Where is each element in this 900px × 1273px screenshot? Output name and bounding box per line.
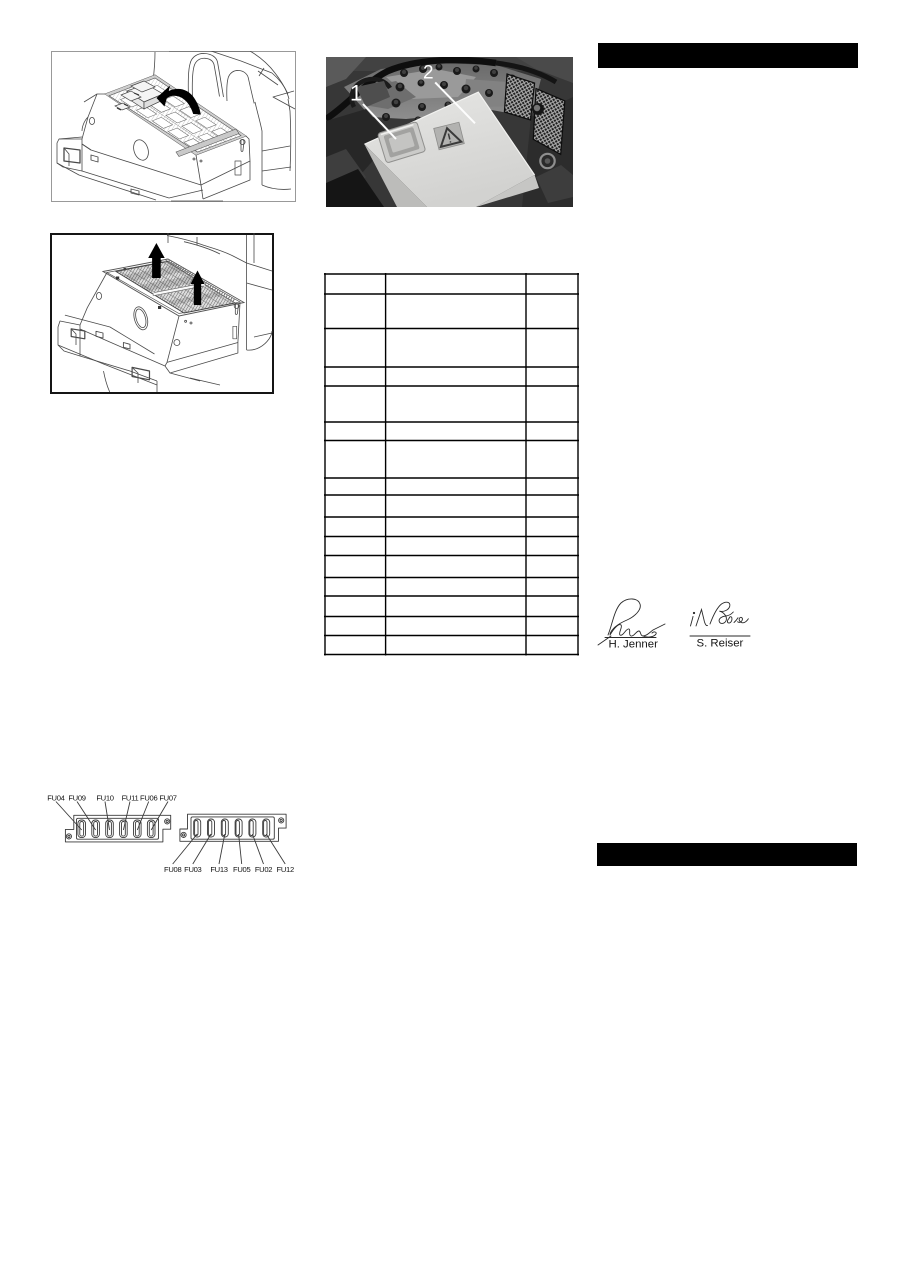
- svg-text:FU04: FU04: [47, 793, 64, 802]
- svg-text:FU11: FU11: [122, 793, 139, 802]
- svg-text:FU06: FU06: [140, 793, 157, 802]
- svg-text:FU13: FU13: [210, 865, 227, 874]
- svg-text:FU03: FU03: [184, 865, 201, 874]
- svg-text:FU08: FU08: [164, 865, 181, 874]
- svg-text:FU05: FU05: [233, 865, 250, 874]
- svg-text:FU09: FU09: [68, 793, 85, 802]
- svg-text:FU07: FU07: [159, 793, 176, 802]
- svg-text:2: 2: [423, 63, 434, 84]
- svg-text:FU10: FU10: [96, 793, 113, 802]
- svg-text:S. Reiser: S. Reiser: [697, 638, 744, 650]
- svg-text:H. Jenner: H. Jenner: [609, 639, 659, 651]
- svg-text:1: 1: [350, 81, 362, 106]
- svg-text:FU02: FU02: [255, 865, 272, 874]
- svg-text:FU12: FU12: [277, 865, 294, 874]
